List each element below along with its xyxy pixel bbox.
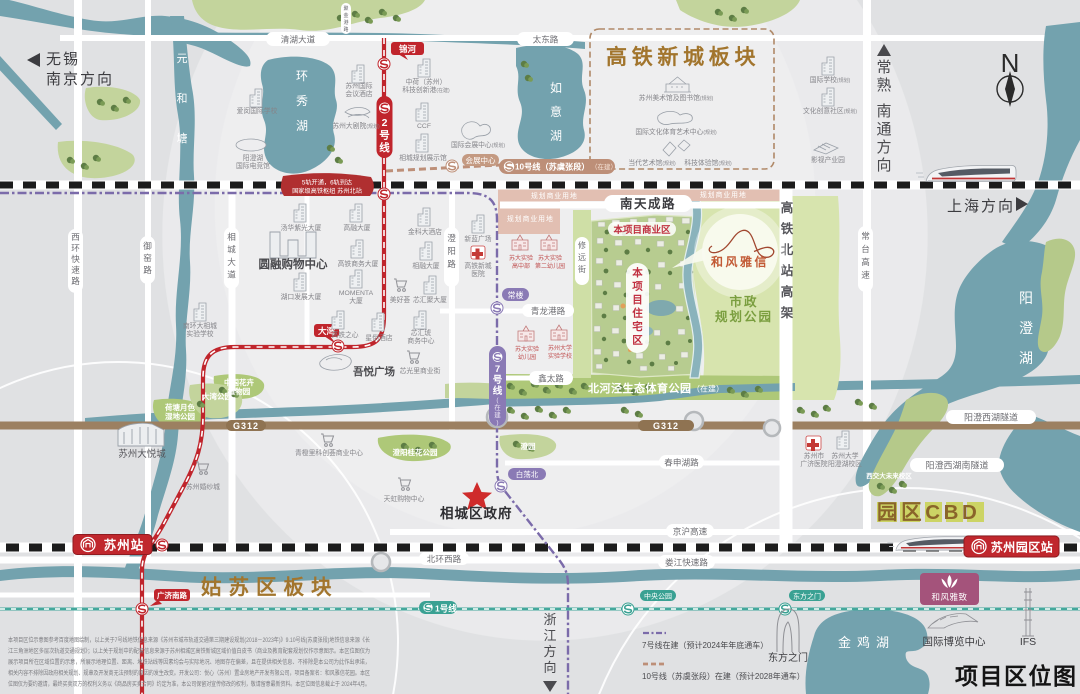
svg-text:修远街: 修远街 xyxy=(578,240,586,274)
svg-text:高铁新城板块: 高铁新城板块 xyxy=(606,45,760,69)
svg-text:苏大实验: 苏大实验 xyxy=(515,345,539,353)
svg-text:实验学校: 实验学校 xyxy=(548,352,572,360)
svg-text:相融大厦: 相融大厦 xyxy=(412,261,439,270)
svg-text:聚金港路: 聚金港路 xyxy=(343,6,348,33)
svg-text:如意湖: 如意湖 xyxy=(550,80,562,143)
svg-text:广济医院: 广济医院 xyxy=(800,459,827,468)
svg-text:苏州国际: 苏州国际 xyxy=(345,81,372,90)
svg-text:美好荟: 美好荟 xyxy=(390,295,411,304)
svg-text:高铁之心: 高铁之心 xyxy=(331,330,358,339)
svg-text:相城区政府: 相城区政府 xyxy=(440,505,513,521)
svg-text:南通方向: 南通方向 xyxy=(876,103,891,174)
svg-text:7号线在建（预计2024年年底通车）: 7号线在建（预计2024年年底通车） xyxy=(642,640,768,650)
svg-text:规划商业用地: 规划商业用地 xyxy=(700,190,747,199)
svg-text:阳澄湖校区: 阳澄湖校区 xyxy=(828,459,862,468)
svg-text:湖口发展大厦: 湖口发展大厦 xyxy=(281,292,322,301)
svg-text:汤华紫光大厦: 汤华紫光大厦 xyxy=(281,223,322,232)
svg-text:商务中心: 商务中心 xyxy=(407,336,434,345)
svg-text:常楼: 常楼 xyxy=(508,290,524,300)
svg-text:高铁商务大厦: 高铁商务大厦 xyxy=(338,259,379,268)
svg-text:苏州大悦城: 苏州大悦城 xyxy=(118,448,166,460)
svg-text:湿地公园: 湿地公园 xyxy=(165,411,195,421)
svg-text:无锡: 无锡 xyxy=(46,51,80,68)
svg-text:中央公园: 中央公园 xyxy=(644,592,672,601)
svg-text:相城规划展示馆: 相城规划展示馆 xyxy=(399,153,447,162)
svg-text:和风雅致: 和风雅致 xyxy=(931,592,967,602)
svg-text:影视产业园: 影视产业园 xyxy=(811,155,845,164)
svg-text:青龙港路: 青龙港路 xyxy=(531,305,566,316)
svg-text:吾悦广场: 吾悦广场 xyxy=(353,365,395,378)
svg-text:金鸡湖: 金鸡湖 xyxy=(838,635,895,650)
svg-text:南天成路: 南天成路 xyxy=(620,196,676,211)
svg-text:鑫太路: 鑫太路 xyxy=(538,373,564,384)
svg-text:荷塘月色: 荷塘月色 xyxy=(164,402,195,412)
svg-text:春申湖路: 春申湖路 xyxy=(664,457,699,468)
svg-text:G312: G312 xyxy=(233,421,259,431)
svg-text:苏州大学: 苏州大学 xyxy=(831,451,858,460)
svg-text:大湾公园: 大湾公园 xyxy=(202,391,232,401)
svg-text:第二幼儿园: 第二幼儿园 xyxy=(535,262,565,270)
svg-text:G312: G312 xyxy=(653,421,679,431)
svg-text:会展中心: 会展中心 xyxy=(466,155,496,165)
svg-text:本项目商业区: 本项目商业区 xyxy=(613,224,671,236)
svg-text:南环大相城: 南环大相城 xyxy=(183,321,217,330)
svg-text:（在建）: （在建） xyxy=(591,162,617,171)
svg-text:（在建）: （在建） xyxy=(692,384,724,394)
svg-text:10号线（苏虞张段）在建（预计2028年通车）: 10号线（苏虞张段）在建（预计2028年通车） xyxy=(642,671,805,681)
svg-text:苏州市: 苏州市 xyxy=(804,451,825,460)
svg-text:和风雅信: 和风雅信 xyxy=(710,254,769,269)
svg-text:浙江方向: 浙江方向 xyxy=(543,612,556,675)
svg-text:国际博览中心: 国际博览中心 xyxy=(923,635,986,648)
svg-text:广济南路: 广济南路 xyxy=(157,590,187,600)
svg-text:高融大厦: 高融大厦 xyxy=(343,223,370,232)
svg-text:环秀湖: 环秀湖 xyxy=(296,69,308,133)
svg-text:苏州园区站: 苏州园区站 xyxy=(991,540,1054,555)
svg-text:苏州大学: 苏州大学 xyxy=(548,344,572,352)
svg-text:苏大实验: 苏大实验 xyxy=(509,254,533,262)
svg-text:规划公园: 规划公园 xyxy=(715,309,773,324)
svg-text:御窑路: 御窑路 xyxy=(143,240,152,275)
svg-text:高铁新城: 高铁新城 xyxy=(464,261,491,270)
svg-text:澄阳桂花公园: 澄阳桂花公园 xyxy=(393,447,438,457)
svg-text:CCF: CCF xyxy=(417,123,431,130)
svg-text:西交大未来校区: 西交大未来校区 xyxy=(866,471,912,480)
svg-text:锦河: 锦河 xyxy=(399,44,417,54)
svg-text:医院: 医院 xyxy=(471,269,485,278)
svg-text:相关内容不排除因政府相关规划、规章及开发商无法预制的原因的发: 相关内容不排除因政府相关规划、规章及开发商无法预制的原因的发生改变。开发公司：悦… xyxy=(8,669,370,677)
svg-text:国际电竞馆: 国际电竞馆 xyxy=(236,161,270,170)
svg-text:1号线: 1号线 xyxy=(435,604,457,614)
svg-text:阳澄湖: 阳澄湖 xyxy=(243,153,264,162)
svg-text:芯光里商业街: 芯光里商业街 xyxy=(400,366,441,375)
svg-text:规划商业用地: 规划商业用地 xyxy=(531,191,578,200)
svg-text:规划商业用地: 规划商业用地 xyxy=(507,214,554,223)
svg-text:澄阳路: 澄阳路 xyxy=(447,233,456,269)
svg-text:位图仅为要约邀请，最终买卖双方的权利义务以《商品房买卖合同》: 位图仅为要约邀请，最终买卖双方的权利义务以《商品房买卖合同》约定为准，本公司保留… xyxy=(8,680,370,688)
svg-text:金科大酒店: 金科大酒店 xyxy=(408,227,442,236)
svg-text:MOMENTA: MOMENTA xyxy=(339,290,374,297)
svg-text:中国花卉: 中国花卉 xyxy=(224,377,254,387)
svg-text:东方之门: 东方之门 xyxy=(793,592,821,601)
svg-text:白荡北: 白荡北 xyxy=(516,469,539,479)
svg-text:上海方向: 上海方向 xyxy=(947,198,1015,215)
svg-text:姑苏区板块: 姑苏区板块 xyxy=(201,575,339,599)
svg-text:苏大实验: 苏大实验 xyxy=(538,254,562,262)
svg-text:大厦: 大厦 xyxy=(349,296,363,305)
svg-text:阳澄湖: 阳澄湖 xyxy=(1019,290,1033,366)
svg-text:高中部: 高中部 xyxy=(512,262,530,270)
svg-text:太东路: 太东路 xyxy=(533,34,559,45)
svg-text:苏州婚纱城: 苏州婚纱城 xyxy=(186,482,220,491)
svg-text:园区CBD: 园区CBD xyxy=(877,501,980,524)
svg-text:IFS: IFS xyxy=(1020,636,1036,648)
svg-text:北河泾生态体育公园: 北河泾生态体育公园 xyxy=(588,381,692,395)
svg-text:南京方向: 南京方向 xyxy=(46,71,114,88)
svg-text:天虹购物中心: 天虹购物中心 xyxy=(384,494,425,503)
svg-text:项目区位图: 项目区位图 xyxy=(955,663,1078,689)
svg-text:娄江快速路: 娄江快速路 xyxy=(665,557,708,568)
svg-text:展示项目所在区域位置的示意，所展示地理位置、距离、地铁站线等: 展示项目所在区域位置的示意，所展示地理位置、距离、地铁站线等因素均会与实际地况、… xyxy=(8,658,370,666)
svg-text:星倒酒店: 星倒酒店 xyxy=(365,333,392,342)
svg-text:常熟: 常熟 xyxy=(876,59,891,94)
svg-text:阳澄西湖隧道: 阳澄西湖隧道 xyxy=(964,412,1018,423)
svg-text:实验学校: 实验学校 xyxy=(186,329,213,338)
svg-text:阳澄西湖南隧道: 阳澄西湖南隧道 xyxy=(925,460,988,471)
svg-text:爱闵国际学校: 爱闵国际学校 xyxy=(237,106,278,115)
svg-text:会议酒店: 会议酒店 xyxy=(345,89,372,98)
svg-text:圆融购物中心: 圆融购物中心 xyxy=(259,257,328,271)
svg-text:市政: 市政 xyxy=(729,294,758,309)
svg-text:北环西路: 北环西路 xyxy=(427,553,462,564)
svg-text:新蓝广场: 新蓝广场 xyxy=(464,234,491,243)
svg-text:国家级高铁枢纽 苏州北站: 国家级高铁枢纽 苏州北站 xyxy=(292,187,362,195)
svg-text:澄园: 澄园 xyxy=(521,441,536,451)
svg-text:幼儿园: 幼儿园 xyxy=(518,353,536,361)
svg-text:青橙里科创荟商业中心: 青橙里科创荟商业中心 xyxy=(295,448,363,457)
svg-text:京沪高速: 京沪高速 xyxy=(673,526,708,537)
svg-text:中荷（苏州）: 中荷（苏州） xyxy=(406,77,447,86)
svg-text:10号线（苏虞张段）: 10号线（苏虞张段） xyxy=(515,162,590,172)
svg-text:清湖大道: 清湖大道 xyxy=(281,34,316,45)
svg-text:东方之门: 东方之门 xyxy=(768,651,808,664)
svg-text:西环快速路: 西环快速路 xyxy=(71,232,80,286)
svg-text:芯汇聚大厦: 芯汇聚大厦 xyxy=(413,295,447,304)
svg-text:本项目区位示意图参考百度地图绘制，以上关于7号线地铁信息来源: 本项目区位示意图参考百度地图绘制，以上关于7号线地铁信息来源《苏州市城市轨道交通… xyxy=(8,636,370,644)
svg-text:苏州站: 苏州站 xyxy=(104,538,145,553)
svg-text:江三角洲地区多层次轨道交通规划》；以上关于规划中的配套信息来: 江三角洲地区多层次轨道交通规划》；以上关于规划中的配套信息来源于苏州相城区高铁新… xyxy=(8,647,370,655)
svg-text:芯汇琥: 芯汇琥 xyxy=(411,328,432,337)
svg-text:5轨开通，6轨到达: 5轨开通，6轨到达 xyxy=(302,179,352,187)
